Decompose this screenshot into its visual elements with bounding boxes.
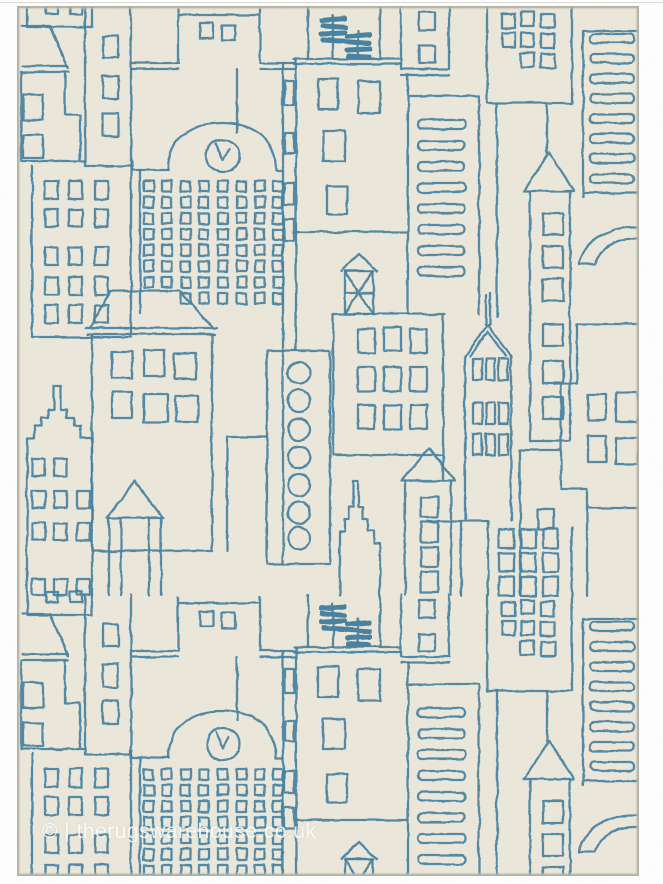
fabric-texture-overlay xyxy=(18,7,638,875)
product-photo-page: { "image": { "kind": "product-photo", "d… xyxy=(0,0,663,884)
photo-frame: © | therugswarehouse.co.uk xyxy=(0,0,663,884)
rug-product-image xyxy=(0,0,663,884)
